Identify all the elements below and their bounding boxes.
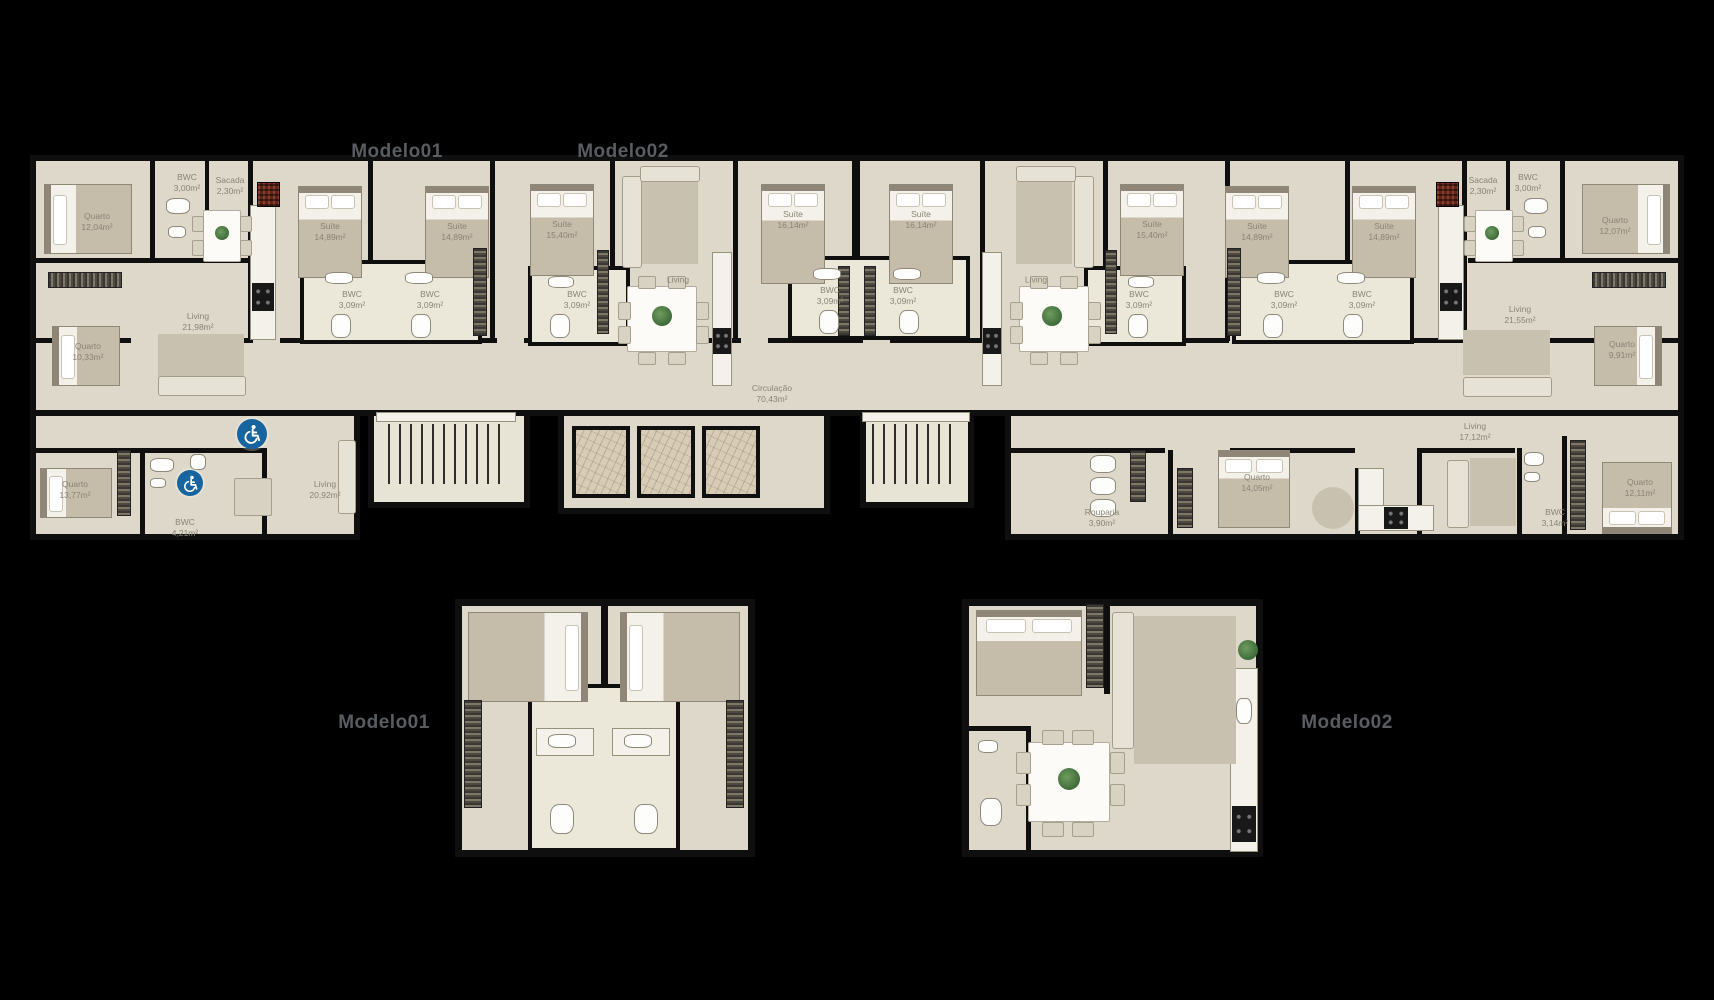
sofa (622, 176, 642, 268)
chair (1512, 216, 1524, 232)
room-area: 20,92m² (309, 490, 340, 501)
room-label-living: Living21,55m² (1504, 304, 1535, 326)
room-area: 14,05m² (1241, 483, 1272, 494)
room-name: BWC (1515, 172, 1541, 183)
room-label-rouparia: Rouparia3,90m² (1085, 507, 1120, 529)
sink (813, 268, 841, 280)
room-area: 3,09m² (339, 300, 365, 311)
room-name: Quarto (72, 341, 103, 352)
title-modelo02-bottom: Modelo02 (1301, 712, 1393, 734)
room-label-bwc: BWC3,09m² (817, 285, 843, 307)
kitchen-counter (1438, 205, 1464, 340)
room-label-bwc: BWC3,09m² (339, 289, 365, 311)
toilet (411, 314, 431, 338)
toilet (1128, 314, 1148, 338)
room-label-bwc: BWC3,09m² (1349, 289, 1375, 311)
room-name: BWC (1349, 289, 1375, 300)
room-area: 13,77m² (59, 490, 90, 501)
toilet (1524, 198, 1548, 214)
stair-landing (862, 412, 970, 422)
chair (1088, 302, 1101, 320)
room-area: 14,89m² (1241, 232, 1272, 243)
room-area: 70,43m² (752, 394, 792, 405)
sink (978, 740, 998, 753)
room-label-bwc: BWC4,21m² (172, 517, 198, 539)
room-label-suite: Suíte15,40m² (1136, 219, 1167, 241)
room-area: 3,14m² (1542, 518, 1568, 529)
sofa (1074, 176, 1094, 268)
sink (1528, 226, 1546, 238)
room-name: Quarto (1241, 472, 1272, 483)
room-name: Sacada (1469, 175, 1498, 186)
room-label-bwc: BWC3,14m² (1542, 507, 1568, 529)
toilet (634, 804, 658, 834)
plant (215, 226, 229, 240)
room-name: Suíte (314, 221, 345, 232)
chair (1464, 240, 1476, 256)
room-name: Rouparia (1085, 507, 1120, 518)
wardrobe (117, 450, 131, 516)
elevator-car (572, 426, 630, 498)
bbq-grill (257, 182, 280, 207)
bbq-grill (1436, 182, 1459, 207)
shelf (1090, 455, 1116, 473)
room-area: 16,14m² (777, 220, 808, 231)
room-name: Quarto (59, 479, 90, 490)
room-area: 15,40m² (546, 230, 577, 241)
room-label-bwc: BWC3,00m² (1515, 172, 1541, 194)
stair-treads (872, 424, 960, 484)
stove (1440, 283, 1462, 311)
sink (1236, 698, 1252, 724)
interior-wall (733, 161, 738, 341)
wardrobe (726, 700, 744, 808)
room-area: 3,90m² (1085, 518, 1120, 529)
interior-wall (490, 161, 495, 341)
wardrobe (1177, 468, 1193, 528)
rug (642, 182, 698, 264)
room-label-bwc: BWC3,09m² (564, 289, 590, 311)
stove (1384, 507, 1408, 529)
chair (1010, 302, 1023, 320)
room-name: Quarto (1625, 477, 1656, 488)
room-label-quarto: Quarto12,11m² (1625, 477, 1656, 499)
chair (1030, 352, 1048, 365)
stove (983, 328, 1001, 354)
room-label-bwc: BWC3,09m² (1126, 289, 1152, 311)
room-area: 2,30m² (1469, 186, 1498, 197)
chair (668, 352, 686, 365)
wardrobe (1227, 248, 1241, 336)
bed (620, 612, 740, 702)
plant (1042, 306, 1062, 326)
wheelchair-accessible-icon (237, 419, 267, 449)
sink (1128, 276, 1154, 288)
room-name: Circulação (752, 383, 792, 394)
chair (1464, 216, 1476, 232)
rug (1463, 330, 1550, 375)
room-name: Living (309, 479, 340, 490)
sink (893, 268, 921, 280)
room-area: 14,89m² (1368, 232, 1399, 243)
room-name: Living (667, 274, 689, 285)
room-name: Quarto (1599, 215, 1630, 226)
room-area: 3,09m² (417, 300, 443, 311)
stair-treads (388, 424, 506, 484)
chair (240, 240, 252, 256)
room-name: BWC (172, 517, 198, 528)
wardrobe (1592, 272, 1666, 288)
sofa (1112, 612, 1134, 749)
room-label-living: Living17,12m² (1459, 421, 1490, 443)
room-label-quarto: Quarto12,04m² (81, 211, 112, 233)
chair (1016, 752, 1031, 774)
rug (1312, 487, 1354, 529)
room-area: 15,40m² (1136, 230, 1167, 241)
toilet (1524, 452, 1544, 466)
stove (252, 283, 274, 311)
room-label-sacada: Sacada2,30m² (216, 175, 245, 197)
chair (1512, 240, 1524, 256)
kitchen-counter (982, 252, 1002, 386)
sink (325, 272, 353, 284)
sink (168, 226, 186, 238)
floor-plan-canvas: Modelo01 Modelo02 Modelo01 Modelo02 Quar… (0, 0, 1714, 1000)
sofa (640, 166, 700, 182)
room-label-quarto: Quarto12,07m² (1599, 215, 1630, 237)
toilet (1263, 314, 1283, 338)
chair (1010, 326, 1023, 344)
stove (1232, 806, 1256, 842)
room-area: 2,30m² (216, 186, 245, 197)
toilet (331, 314, 351, 338)
room-label-quarto: Quarto10,33m² (72, 341, 103, 363)
kitchen-counter (250, 205, 276, 340)
sink (624, 734, 652, 748)
room-name: BWC (817, 285, 843, 296)
room-name: BWC (564, 289, 590, 300)
interior-wall (140, 448, 145, 534)
chair (696, 326, 709, 344)
wardrobe (473, 248, 487, 336)
chair (1042, 822, 1064, 837)
room-area: 21,55m² (1504, 315, 1535, 326)
room-name: Suíte (441, 221, 472, 232)
sofa (1016, 166, 1076, 182)
room-label-sacada: Sacada2,30m² (1469, 175, 1498, 197)
room-area: 3,09m² (1349, 300, 1375, 311)
room-name: BWC (1542, 507, 1568, 518)
shelf (1090, 477, 1116, 495)
room-name: Suíte (546, 219, 577, 230)
chair (1042, 730, 1064, 745)
room-label-suite: Suíte14,89m² (314, 221, 345, 243)
chair (1110, 784, 1125, 806)
room-label-living: Living21,98m² (182, 311, 213, 333)
chair (1088, 326, 1101, 344)
room-label-suite: Suíte16,14m² (777, 209, 808, 231)
interior-wall (1560, 161, 1565, 261)
room-area: 3,09m² (890, 296, 916, 307)
room-area: 17,12m² (1459, 432, 1490, 443)
elevator-car (637, 426, 695, 498)
interior-wall (1104, 599, 1110, 694)
title-modelo01-bottom: Modelo01 (338, 712, 430, 734)
chair (1016, 784, 1031, 806)
room-area: 10,33m² (72, 352, 103, 363)
chair (1060, 276, 1078, 289)
toilet (1343, 314, 1363, 338)
wardrobe (1105, 250, 1117, 334)
interior-wall (150, 161, 155, 261)
stove (713, 328, 731, 354)
room-label-living: Living20,92m² (309, 479, 340, 501)
toilet (980, 798, 1002, 826)
room-name: Living (1025, 274, 1047, 285)
room-name: Suíte (777, 209, 808, 220)
room-name: Suíte (905, 209, 936, 220)
room-label-quarto: Quarto9,91m² (1609, 339, 1635, 361)
room-area: 12,04m² (81, 222, 112, 233)
chair (192, 240, 204, 256)
title-modelo02-top: Modelo02 (577, 141, 669, 163)
room-name: BWC (1271, 289, 1297, 300)
room-label-living: Living (667, 274, 689, 285)
chair (1072, 822, 1094, 837)
room-name: Suíte (1241, 221, 1272, 232)
room-name: Living (1459, 421, 1490, 432)
sink (1257, 272, 1285, 284)
shower (190, 454, 206, 470)
interior-wall (1168, 450, 1173, 534)
room-name: Suíte (1136, 219, 1167, 230)
sofa (1447, 460, 1469, 528)
room-area: 14,89m² (441, 232, 472, 243)
title-modelo01-top: Modelo01 (351, 141, 443, 163)
bed (976, 610, 1082, 696)
toilet (899, 310, 919, 334)
room-label-quarto: Quarto13,77m² (59, 479, 90, 501)
room-label-circulacao: Circulação70,43m² (752, 383, 792, 405)
chair (1060, 352, 1078, 365)
sofa (1463, 377, 1552, 397)
plant (1485, 226, 1499, 240)
wardrobe (1086, 604, 1104, 688)
wardrobe (48, 272, 122, 288)
rug (1016, 182, 1072, 264)
bed (468, 612, 588, 702)
toilet (550, 804, 574, 834)
room-area: 3,09m² (1126, 300, 1152, 311)
room-area: 21,98m² (182, 322, 213, 333)
chair (240, 216, 252, 232)
room-name: Quarto (1609, 339, 1635, 350)
room-label-suite: Suíte16,14m² (905, 209, 936, 231)
chair (696, 302, 709, 320)
plant (652, 306, 672, 326)
room-area: 9,91m² (1609, 350, 1635, 361)
chair (1110, 752, 1125, 774)
room-name: BWC (174, 172, 200, 183)
room-area: 16,14m² (905, 220, 936, 231)
toilet (166, 198, 190, 214)
interior-wall (36, 448, 266, 453)
room-area: 12,07m² (1599, 226, 1630, 237)
wardrobe (464, 700, 482, 808)
room-area: 4,21m² (172, 528, 198, 539)
wheelchair-accessible-icon (177, 470, 203, 496)
sink (1337, 272, 1365, 284)
room-label-quarto: Quarto14,05m² (1241, 472, 1272, 494)
chair (192, 216, 204, 232)
room-label-bwc: BWC3,09m² (417, 289, 443, 311)
chair (1072, 730, 1094, 745)
interior-wall (1517, 448, 1522, 534)
room-name: Quarto (81, 211, 112, 222)
room-name: Living (1504, 304, 1535, 315)
room-name: Living (182, 311, 213, 322)
room-name: BWC (417, 289, 443, 300)
chair (638, 352, 656, 365)
plant (1058, 768, 1080, 790)
room-label-suite: Suíte14,89m² (441, 221, 472, 243)
room-label-bwc: BWC3,00m² (174, 172, 200, 194)
room-name: BWC (890, 285, 916, 296)
chair (618, 326, 631, 344)
rug (1134, 616, 1236, 764)
kitchen-counter (1358, 468, 1384, 510)
interior-wall (1420, 448, 1515, 453)
sofa (158, 376, 246, 396)
room-area: 12,11m² (1625, 488, 1656, 499)
room-name: BWC (1126, 289, 1152, 300)
chair (638, 276, 656, 289)
toilet (819, 310, 839, 334)
room-label-suite: Suíte15,40m² (546, 219, 577, 241)
armchair (234, 478, 272, 516)
toilet (550, 314, 570, 338)
wardrobe (864, 266, 876, 336)
chair (618, 302, 631, 320)
interior-wall (968, 726, 1028, 731)
sofa (338, 440, 356, 514)
wardrobe (597, 250, 609, 334)
room-label-living: Living (1025, 274, 1047, 285)
room-name: Sacada (216, 175, 245, 186)
room-area: 3,09m² (817, 296, 843, 307)
room-area: 3,00m² (174, 183, 200, 194)
sink (548, 276, 574, 288)
plant (1238, 640, 1258, 660)
sink (405, 272, 433, 284)
rug (1470, 458, 1516, 526)
room-label-suite: Suíte14,89m² (1368, 221, 1399, 243)
toilet (150, 458, 174, 472)
sink (150, 478, 166, 488)
room-area: 3,09m² (564, 300, 590, 311)
room-name: Suíte (1368, 221, 1399, 232)
room-label-bwc: BWC3,09m² (1271, 289, 1297, 311)
wardrobe (1570, 440, 1586, 530)
wardrobe (1130, 450, 1146, 502)
sink (548, 734, 576, 748)
room-area: 3,09m² (1271, 300, 1297, 311)
room-area: 3,00m² (1515, 183, 1541, 194)
sink (1524, 472, 1540, 482)
kitchen-counter (712, 252, 732, 386)
room-area: 14,89m² (314, 232, 345, 243)
elevator-car (702, 426, 760, 498)
room-name: BWC (339, 289, 365, 300)
room-label-suite: Suíte14,89m² (1241, 221, 1272, 243)
stair-landing (376, 412, 516, 422)
room-label-bwc: BWC3,09m² (890, 285, 916, 307)
